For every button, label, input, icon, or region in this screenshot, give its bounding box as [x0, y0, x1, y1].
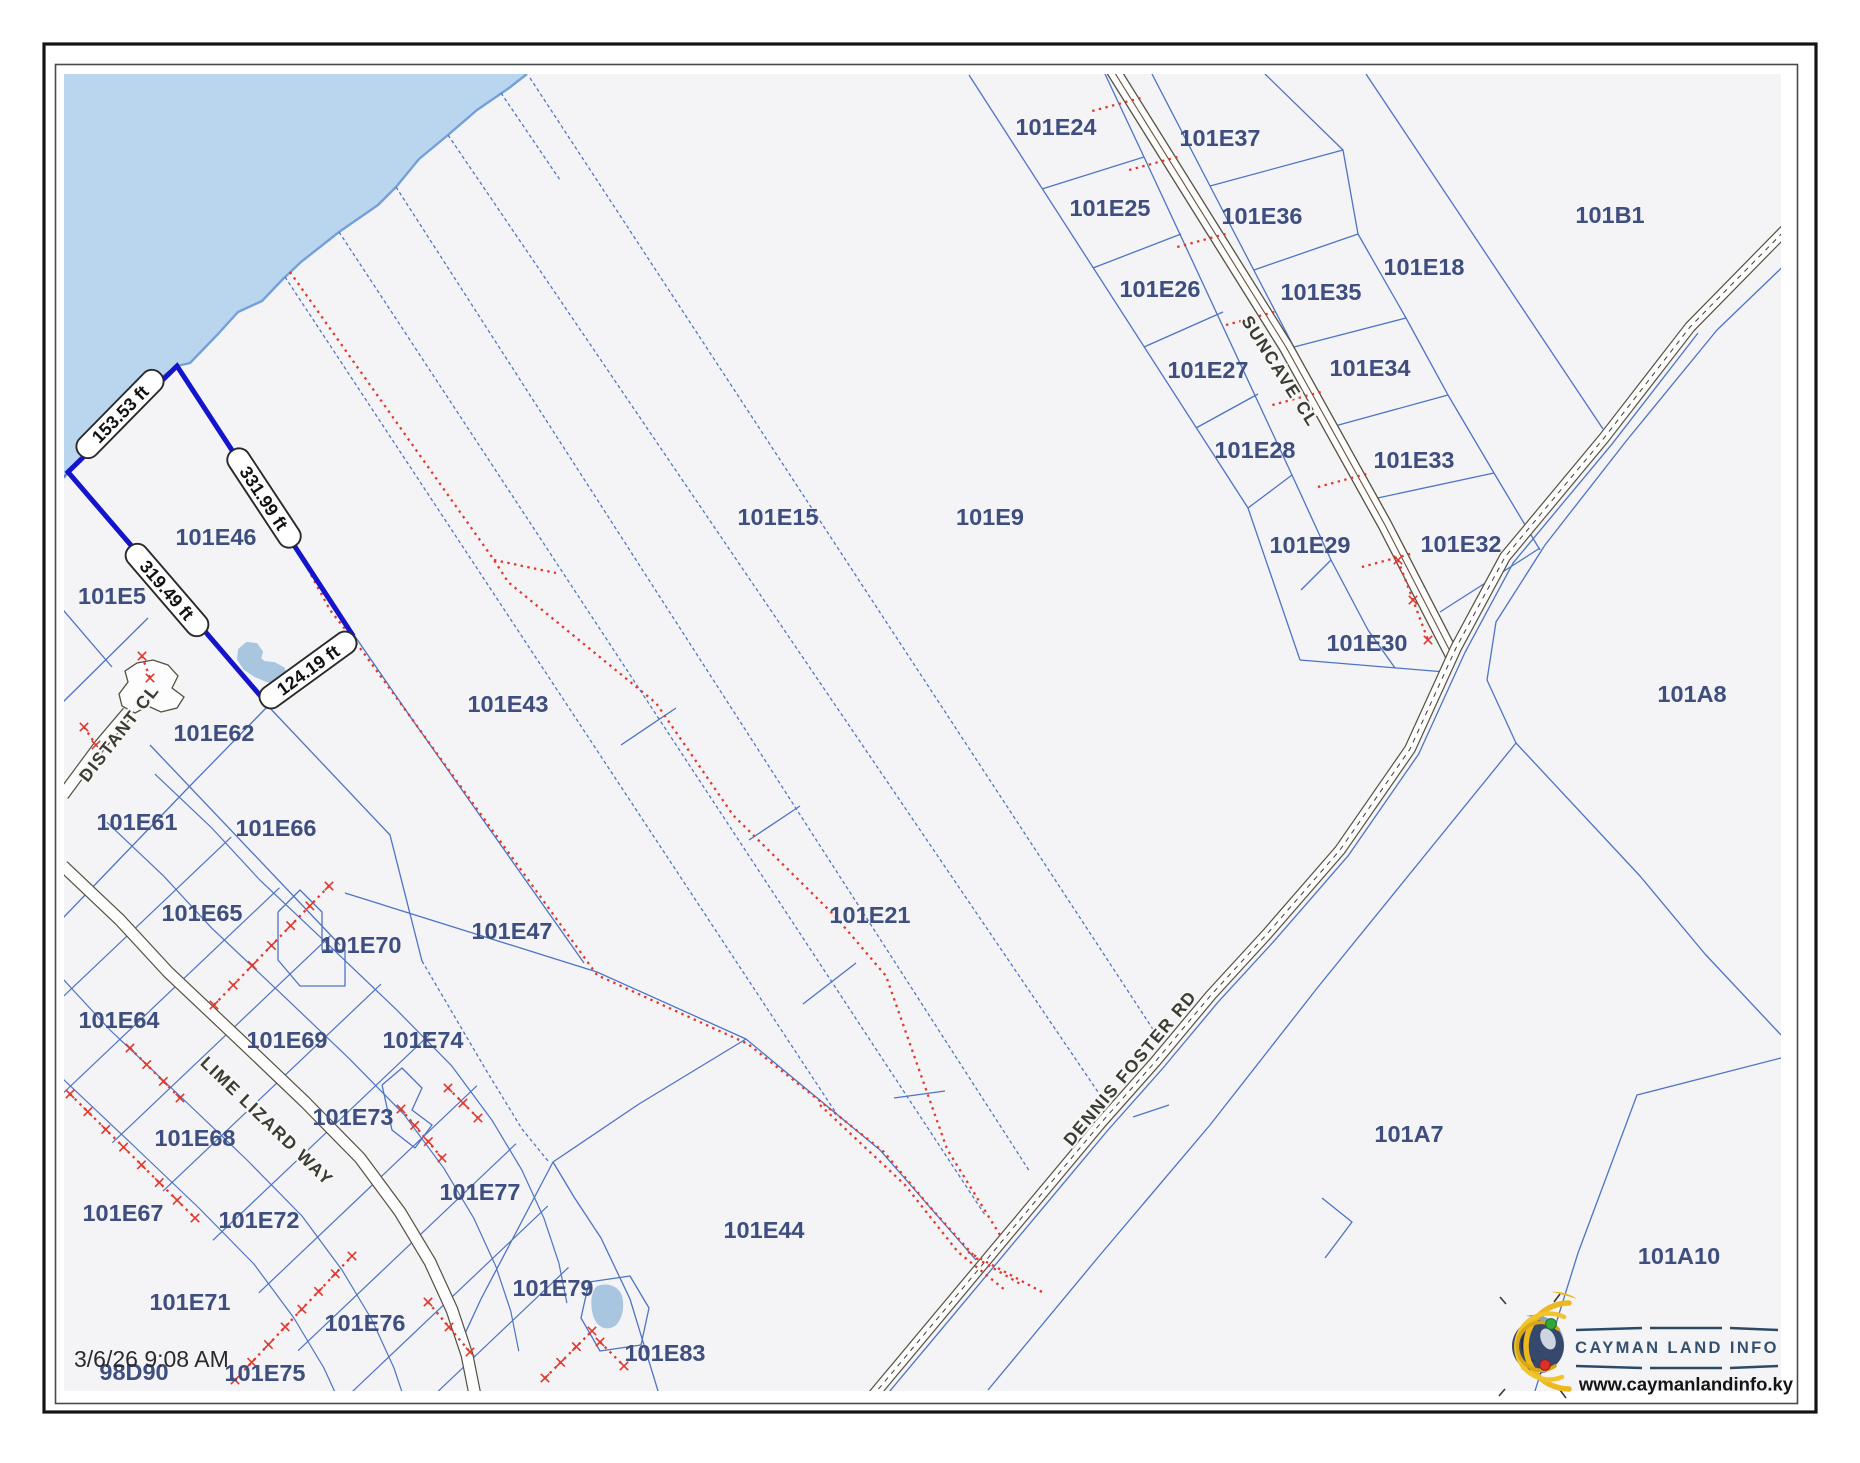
svg-text:101E66: 101E66 [235, 815, 316, 841]
svg-text:101E36: 101E36 [1221, 203, 1302, 229]
svg-text:3/6/26 9:08 AM: 3/6/26 9:08 AM [74, 1346, 229, 1372]
svg-text:101E74: 101E74 [382, 1027, 463, 1053]
svg-text:101E67: 101E67 [82, 1200, 163, 1226]
svg-text:101E79: 101E79 [512, 1275, 593, 1301]
svg-text:101E64: 101E64 [78, 1007, 159, 1033]
svg-text:101E32: 101E32 [1420, 531, 1501, 557]
svg-text:101E15: 101E15 [737, 504, 818, 530]
svg-text:101E69: 101E69 [246, 1027, 327, 1053]
svg-text:101E29: 101E29 [1269, 532, 1350, 558]
svg-text:101E27: 101E27 [1167, 357, 1248, 383]
svg-text:101E21: 101E21 [829, 902, 910, 928]
svg-text:101E35: 101E35 [1280, 279, 1361, 305]
svg-text:101E46: 101E46 [175, 524, 256, 550]
svg-text:101E73: 101E73 [312, 1104, 393, 1130]
svg-text:101E34: 101E34 [1329, 355, 1410, 381]
svg-text:101A8: 101A8 [1657, 681, 1726, 707]
svg-text:101E47: 101E47 [471, 918, 552, 944]
svg-text:101A7: 101A7 [1374, 1121, 1443, 1147]
svg-text:101E68: 101E68 [154, 1125, 235, 1151]
svg-text:101E25: 101E25 [1069, 195, 1150, 221]
svg-text:101E70: 101E70 [320, 932, 401, 958]
svg-text:CAYMAN LAND INFO: CAYMAN LAND INFO [1575, 1339, 1779, 1357]
svg-text:101E28: 101E28 [1214, 437, 1295, 463]
svg-text:101E62: 101E62 [173, 720, 254, 746]
svg-text:101E43: 101E43 [467, 691, 548, 717]
svg-text:101E71: 101E71 [149, 1289, 230, 1315]
svg-text:101E77: 101E77 [439, 1179, 520, 1205]
svg-text:101E83: 101E83 [624, 1340, 705, 1366]
svg-text:101E18: 101E18 [1383, 254, 1464, 280]
svg-text:101E44: 101E44 [723, 1217, 804, 1243]
svg-text:101E24: 101E24 [1015, 114, 1096, 140]
svg-text:101B1: 101B1 [1575, 202, 1644, 228]
svg-text:101E61: 101E61 [96, 809, 177, 835]
svg-text:101E37: 101E37 [1179, 125, 1260, 151]
svg-text:101E76: 101E76 [324, 1310, 405, 1336]
svg-text:www.caymanlandinfo.ky: www.caymanlandinfo.ky [1578, 1374, 1794, 1395]
svg-text:101E30: 101E30 [1326, 630, 1407, 656]
svg-text:101A10: 101A10 [1638, 1243, 1720, 1269]
svg-text:101E33: 101E33 [1373, 447, 1454, 473]
svg-text:101E65: 101E65 [161, 900, 242, 926]
svg-text:101E9: 101E9 [956, 504, 1024, 530]
svg-text:101E75: 101E75 [224, 1360, 305, 1386]
svg-text:101E72: 101E72 [218, 1207, 299, 1233]
svg-text:101E5: 101E5 [78, 583, 146, 609]
svg-text:101E26: 101E26 [1119, 276, 1200, 302]
